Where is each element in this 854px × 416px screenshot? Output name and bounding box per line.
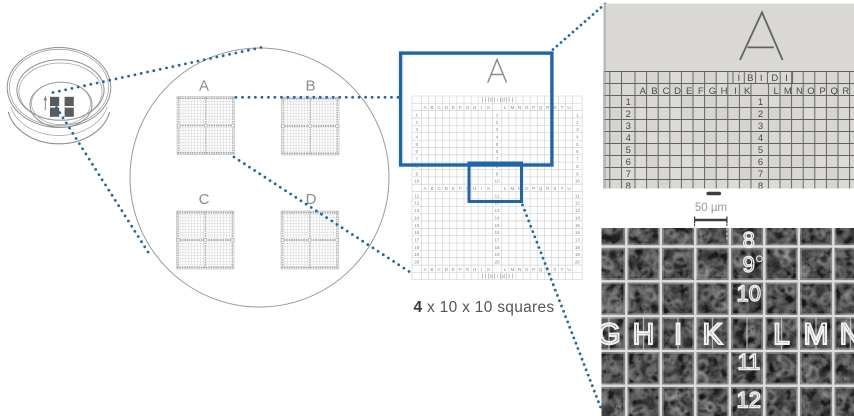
svg-text:14: 14 <box>494 215 500 220</box>
svg-text:B: B <box>431 105 434 110</box>
svg-text:L: L <box>504 186 507 191</box>
svg-text:4 x 10 x 10 squares: 4 x 10 x 10 squares <box>414 299 555 316</box>
svg-text:8: 8 <box>576 164 579 169</box>
svg-text:9: 9 <box>496 171 499 176</box>
svg-text:O: O <box>807 86 814 97</box>
svg-text:N: N <box>518 105 521 110</box>
svg-text:R: R <box>546 105 550 110</box>
svg-text:E: E <box>452 105 455 110</box>
svg-text:4: 4 <box>416 135 419 140</box>
svg-text:7: 7 <box>758 169 763 180</box>
svg-text:6: 6 <box>416 149 419 154</box>
svg-text:18: 18 <box>414 245 420 250</box>
svg-text:50 µm: 50 µm <box>695 202 727 214</box>
svg-text:2: 2 <box>416 120 419 125</box>
svg-text:Q: Q <box>539 186 543 191</box>
svg-text:L: L <box>504 267 507 272</box>
svg-text:8: 8 <box>758 181 763 192</box>
svg-text:L: L <box>774 86 779 97</box>
svg-text:9: 9 <box>758 193 763 204</box>
svg-text:9: 9 <box>743 252 755 277</box>
svg-text:2: 2 <box>758 109 763 120</box>
svg-text:3: 3 <box>576 127 579 132</box>
svg-text:I: I <box>734 86 737 97</box>
svg-text:I: I <box>481 186 482 191</box>
svg-text:Q: Q <box>831 86 838 97</box>
svg-text:D: D <box>445 105 449 110</box>
svg-text:Q: Q <box>539 267 543 272</box>
svg-text:3: 3 <box>496 127 499 132</box>
svg-text:1: 1 <box>576 113 579 118</box>
svg-text:19: 19 <box>494 252 500 257</box>
svg-text:G: G <box>709 86 716 97</box>
svg-text:5: 5 <box>496 142 499 147</box>
svg-text:D: D <box>771 73 778 84</box>
svg-text:M: M <box>510 267 514 272</box>
svg-text:S: S <box>553 105 556 110</box>
svg-text:K: K <box>487 267 491 272</box>
svg-text:1: 1 <box>626 97 631 108</box>
svg-text:17: 17 <box>494 238 500 243</box>
svg-text:O: O <box>525 105 529 110</box>
svg-text:I: I <box>737 73 740 84</box>
svg-text:4: 4 <box>496 135 499 140</box>
svg-text:G: G <box>466 105 470 110</box>
svg-text:C: C <box>438 105 442 110</box>
svg-text:13: 13 <box>494 208 500 213</box>
svg-text:8: 8 <box>626 181 631 192</box>
svg-text:E: E <box>452 186 455 191</box>
svg-text:b: b <box>490 274 493 280</box>
svg-text:S: S <box>553 267 556 272</box>
svg-text:16: 16 <box>494 230 500 235</box>
svg-text:19: 19 <box>575 252 581 257</box>
svg-text:C: C <box>663 86 670 97</box>
svg-text:11: 11 <box>495 193 500 198</box>
svg-text:11: 11 <box>414 193 419 198</box>
svg-text:H: H <box>473 186 476 191</box>
svg-text:I: I <box>481 267 482 272</box>
svg-text:B: B <box>431 267 434 272</box>
svg-text:4: 4 <box>576 135 579 140</box>
svg-text:I: I <box>674 318 682 351</box>
svg-text:R: R <box>546 186 550 191</box>
svg-text:L: L <box>504 105 507 110</box>
svg-text:5: 5 <box>626 145 631 156</box>
svg-text:A: A <box>423 267 427 272</box>
svg-text:15: 15 <box>575 223 581 228</box>
svg-text:6: 6 <box>626 157 631 168</box>
svg-text:N: N <box>840 318 854 351</box>
svg-text:K: K <box>702 318 722 351</box>
svg-text:17: 17 <box>575 238 581 243</box>
svg-text:20: 20 <box>575 260 581 265</box>
svg-text:20: 20 <box>494 260 500 265</box>
svg-text:F: F <box>459 105 462 110</box>
svg-text:9: 9 <box>416 171 419 176</box>
svg-text:7: 7 <box>576 157 579 162</box>
svg-text:A: A <box>423 105 427 110</box>
svg-text:D: D <box>445 186 449 191</box>
svg-text:16: 16 <box>575 230 581 235</box>
svg-text:T: T <box>561 267 564 272</box>
svg-text:R: R <box>842 86 849 97</box>
svg-text:4: 4 <box>626 133 631 144</box>
svg-text:D: D <box>306 191 317 208</box>
svg-text:L: L <box>773 318 790 351</box>
svg-text:C: C <box>438 267 442 272</box>
svg-text:3: 3 <box>416 127 419 132</box>
svg-text:Q: Q <box>539 105 543 110</box>
svg-text:13: 13 <box>575 208 581 213</box>
svg-text:4: 4 <box>758 133 763 144</box>
svg-text:13: 13 <box>414 208 420 213</box>
svg-text:i: i <box>509 274 510 280</box>
svg-text:O: O <box>525 186 529 191</box>
svg-text:T: T <box>561 186 564 191</box>
svg-text:1: 1 <box>496 113 499 118</box>
svg-text:14: 14 <box>414 215 420 220</box>
svg-text:A: A <box>199 78 209 95</box>
svg-text:20: 20 <box>414 260 420 265</box>
svg-text:T: T <box>561 105 564 110</box>
svg-text:6: 6 <box>576 149 579 154</box>
svg-text:11: 11 <box>737 350 760 375</box>
svg-text:7: 7 <box>496 157 499 162</box>
svg-text:6: 6 <box>496 149 499 154</box>
svg-text:10: 10 <box>494 179 500 184</box>
svg-text:K: K <box>487 105 491 110</box>
svg-text:H: H <box>473 105 476 110</box>
svg-text:H: H <box>633 318 655 351</box>
svg-text:N: N <box>796 86 803 97</box>
svg-text:19: 19 <box>414 252 420 257</box>
svg-text:M: M <box>804 318 829 351</box>
svg-text:P: P <box>532 267 535 272</box>
svg-text:C: C <box>438 186 442 191</box>
svg-text:2: 2 <box>496 120 499 125</box>
svg-text:M: M <box>784 86 792 97</box>
svg-text:C: C <box>199 191 210 208</box>
svg-text:8: 8 <box>743 228 755 253</box>
svg-text:K: K <box>487 186 491 191</box>
svg-text:i: i <box>497 274 498 280</box>
svg-text:B: B <box>651 86 657 97</box>
svg-text:I: I <box>760 73 763 84</box>
svg-text:18: 18 <box>494 245 500 250</box>
svg-text:O: O <box>525 267 529 272</box>
svg-text:16: 16 <box>414 230 420 235</box>
svg-text:3: 3 <box>758 121 763 132</box>
svg-text:1: 1 <box>416 113 419 118</box>
svg-text:S: S <box>553 186 556 191</box>
svg-text:G: G <box>466 267 470 272</box>
svg-text:P: P <box>819 86 825 97</box>
svg-text:U: U <box>567 267 570 272</box>
svg-text:P: P <box>532 186 535 191</box>
svg-text:d: d <box>502 98 505 104</box>
svg-text:H: H <box>473 267 476 272</box>
svg-text:11: 11 <box>575 193 580 198</box>
svg-text:17: 17 <box>414 238 420 243</box>
svg-text:10: 10 <box>414 179 420 184</box>
svg-text:18: 18 <box>575 245 581 250</box>
svg-text:F: F <box>459 186 462 191</box>
svg-text:10: 10 <box>575 179 581 184</box>
svg-text:F: F <box>459 267 462 272</box>
svg-text:B: B <box>305 78 315 95</box>
svg-text:F: F <box>698 86 704 97</box>
svg-text:E: E <box>686 86 692 97</box>
svg-text:2: 2 <box>576 120 579 125</box>
svg-text:b: b <box>490 98 493 104</box>
svg-text:i: i <box>485 274 486 280</box>
svg-text:2: 2 <box>626 109 631 120</box>
svg-text:7: 7 <box>416 157 419 162</box>
svg-text:1: 1 <box>758 97 763 108</box>
svg-text:i: i <box>485 98 486 104</box>
svg-text:A: A <box>640 86 647 97</box>
svg-text:P: P <box>532 105 535 110</box>
svg-text:i: i <box>497 98 498 104</box>
svg-text:M: M <box>510 105 514 110</box>
svg-text:B: B <box>747 73 753 84</box>
svg-text:3: 3 <box>626 121 631 132</box>
svg-text:10: 10 <box>737 281 761 306</box>
svg-text:M: M <box>510 186 514 191</box>
svg-text:12: 12 <box>737 387 761 412</box>
svg-text:12: 12 <box>575 201 581 206</box>
svg-text:U: U <box>567 186 570 191</box>
svg-text:14: 14 <box>575 215 581 220</box>
svg-text:N: N <box>518 267 521 272</box>
svg-text:I: I <box>481 105 482 110</box>
svg-text:A: A <box>423 186 427 191</box>
svg-text:5: 5 <box>576 142 579 147</box>
svg-text:U: U <box>567 105 570 110</box>
svg-text:D: D <box>445 267 449 272</box>
svg-text:B: B <box>431 186 434 191</box>
svg-text:d: d <box>502 274 505 280</box>
svg-text:i: i <box>509 98 510 104</box>
svg-text:9: 9 <box>626 193 631 204</box>
svg-text:15: 15 <box>494 223 500 228</box>
svg-text:E: E <box>452 267 455 272</box>
svg-text:15: 15 <box>414 223 420 228</box>
svg-text:12: 12 <box>414 201 420 206</box>
svg-text:D: D <box>674 86 681 97</box>
svg-text:K: K <box>744 86 751 97</box>
svg-text:I: I <box>785 73 788 84</box>
svg-text:G: G <box>597 318 620 351</box>
svg-text:7: 7 <box>626 169 631 180</box>
svg-text:9: 9 <box>576 171 579 176</box>
svg-text:H: H <box>721 86 728 97</box>
svg-text:5: 5 <box>758 145 763 156</box>
svg-text:6: 6 <box>758 157 763 168</box>
svg-text:5: 5 <box>416 142 419 147</box>
